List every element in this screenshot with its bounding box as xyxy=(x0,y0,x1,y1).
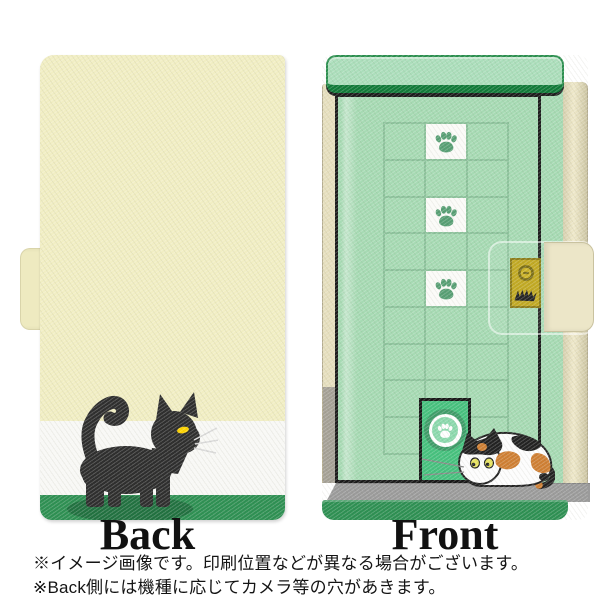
black-cat-illustration xyxy=(68,378,218,510)
door-tile xyxy=(385,234,424,269)
door-tile xyxy=(426,345,465,380)
back-design-cream-band xyxy=(40,55,285,421)
door-tile xyxy=(385,124,424,159)
calico-cat-illustration xyxy=(420,425,555,489)
door-tile xyxy=(468,198,507,233)
door-tile xyxy=(426,161,465,196)
door-tile xyxy=(385,308,424,343)
paw-tile xyxy=(426,271,465,306)
door-tile xyxy=(385,198,424,233)
door-lintel xyxy=(326,55,564,93)
door-tile xyxy=(385,271,424,306)
calico-whiskers xyxy=(422,459,464,475)
door-tile xyxy=(385,345,424,380)
door-tile xyxy=(426,308,465,343)
disclaimer-line-1: ※イメージ画像です。印刷位置などが異なる場合がございます。 xyxy=(33,552,595,576)
paw-print-icon xyxy=(433,202,459,228)
door-tile xyxy=(468,345,507,380)
door-tile xyxy=(468,124,507,159)
case-spine-left xyxy=(322,84,336,483)
front-strap-tab xyxy=(544,242,594,332)
back-cover-preview xyxy=(40,55,285,520)
paw-print-icon xyxy=(433,128,459,154)
paw-tile xyxy=(426,198,465,233)
disclaimer-line-2: ※Back側には機種に応じてカメラ等の穴があきます。 xyxy=(33,576,595,600)
product-mockup: Back Front ※イメージ画像です。印刷位置などが異なる場合がございます。… xyxy=(0,0,600,600)
door-tile xyxy=(468,161,507,196)
door-tile xyxy=(468,381,507,416)
door-tile xyxy=(426,234,465,269)
paw-print-icon xyxy=(433,275,459,301)
door-tile xyxy=(385,161,424,196)
paw-tile xyxy=(426,124,465,159)
disclaimer-notes: ※イメージ画像です。印刷位置などが異なる場合がございます。 ※Back側には機種… xyxy=(33,552,595,599)
